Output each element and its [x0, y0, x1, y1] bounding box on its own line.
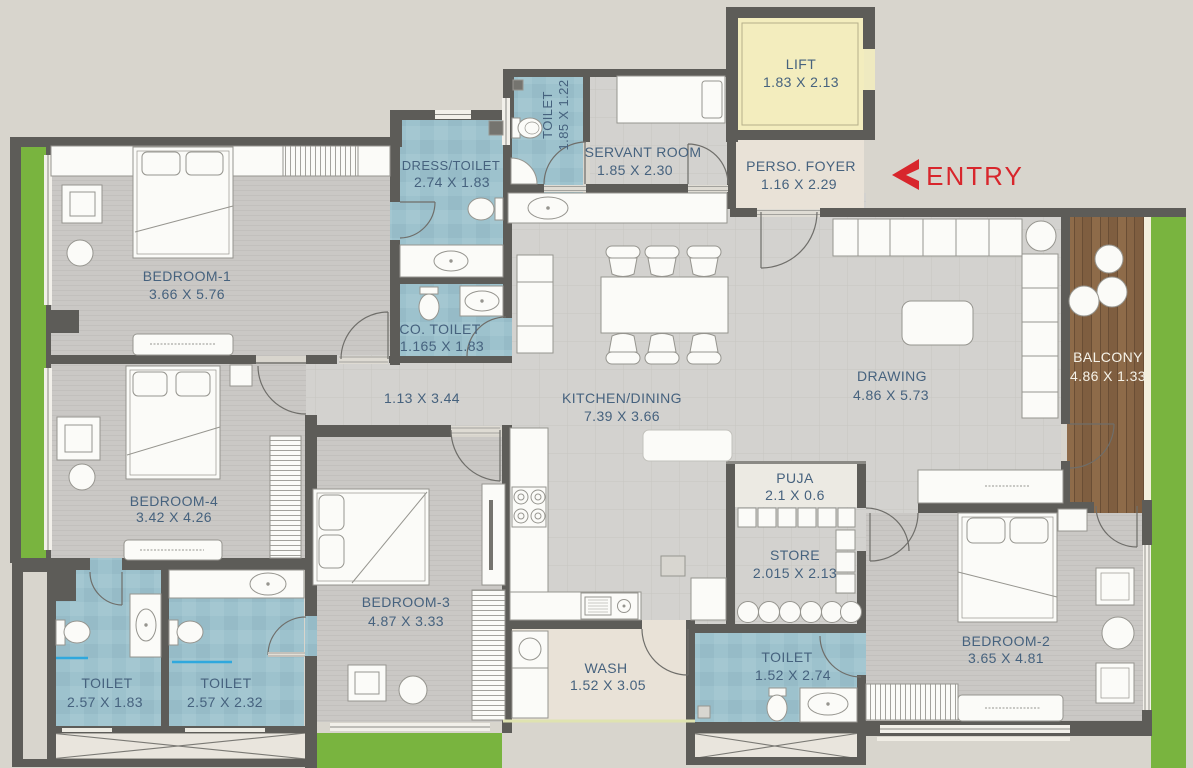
svg-text:2.57 X 2.32: 2.57 X 2.32 — [187, 694, 263, 710]
svg-text:3.42 X 4.26: 3.42 X 4.26 — [136, 509, 212, 525]
svg-text:4.86 X 5.73: 4.86 X 5.73 — [853, 387, 929, 403]
svg-text:KITCHEN/DINING: KITCHEN/DINING — [562, 390, 682, 406]
svg-text:1.13 X 3.44: 1.13 X 3.44 — [384, 390, 460, 406]
svg-text:TOILET: TOILET — [540, 91, 555, 139]
svg-text:LIFT: LIFT — [786, 56, 816, 72]
svg-text:PERSO. FOYER: PERSO. FOYER — [746, 158, 856, 174]
svg-text:4.86 X 1.33: 4.86 X 1.33 — [1070, 368, 1146, 384]
svg-text:2.74 X 1.83: 2.74 X 1.83 — [414, 174, 490, 190]
svg-text:ENTRY: ENTRY — [926, 161, 1024, 191]
svg-text:TOILET: TOILET — [200, 675, 251, 691]
svg-text:BEDROOM-3: BEDROOM-3 — [362, 594, 450, 610]
svg-text:3.66 X 5.76: 3.66 X 5.76 — [149, 286, 225, 302]
svg-text:4.87 X 3.33: 4.87 X 3.33 — [368, 613, 444, 629]
svg-text:1.85 X 1.22: 1.85 X 1.22 — [556, 80, 571, 151]
svg-text:1.52 X 3.05: 1.52 X 3.05 — [570, 677, 646, 693]
svg-text:SERVANT ROOM: SERVANT ROOM — [585, 144, 702, 160]
svg-text:CO. TOILET: CO. TOILET — [399, 321, 480, 337]
svg-text:DRESS/TOILET: DRESS/TOILET — [402, 158, 500, 173]
svg-text:2.57 X 1.83: 2.57 X 1.83 — [67, 694, 143, 710]
svg-text:DRAWING: DRAWING — [857, 368, 927, 384]
svg-text:1.83 X 2.13: 1.83 X 2.13 — [763, 74, 839, 90]
svg-text:STORE: STORE — [770, 547, 820, 563]
svg-text:BEDROOM-4: BEDROOM-4 — [130, 493, 218, 509]
svg-text:1.16 X 2.29: 1.16 X 2.29 — [761, 176, 837, 192]
svg-text:BEDROOM-2: BEDROOM-2 — [962, 633, 1050, 649]
svg-text:TOILET: TOILET — [761, 649, 812, 665]
svg-text:BEDROOM-1: BEDROOM-1 — [143, 268, 231, 284]
svg-text:3.65 X 4.81: 3.65 X 4.81 — [968, 650, 1044, 666]
svg-text:1.52 X 2.74: 1.52 X 2.74 — [755, 667, 831, 683]
svg-text:BALCONY: BALCONY — [1073, 349, 1143, 365]
svg-text:2.1 X 0.6: 2.1 X 0.6 — [765, 487, 825, 503]
svg-text:1.165 X 1.83: 1.165 X 1.83 — [400, 338, 484, 354]
svg-text:1.85 X 2.30: 1.85 X 2.30 — [597, 162, 673, 178]
svg-text:WASH: WASH — [584, 660, 627, 676]
svg-text:PUJA: PUJA — [776, 470, 814, 486]
svg-text:7.39 X 3.66: 7.39 X 3.66 — [584, 408, 660, 424]
svg-text:TOILET: TOILET — [81, 675, 132, 691]
svg-text:2.015 X 2.13: 2.015 X 2.13 — [753, 565, 837, 581]
